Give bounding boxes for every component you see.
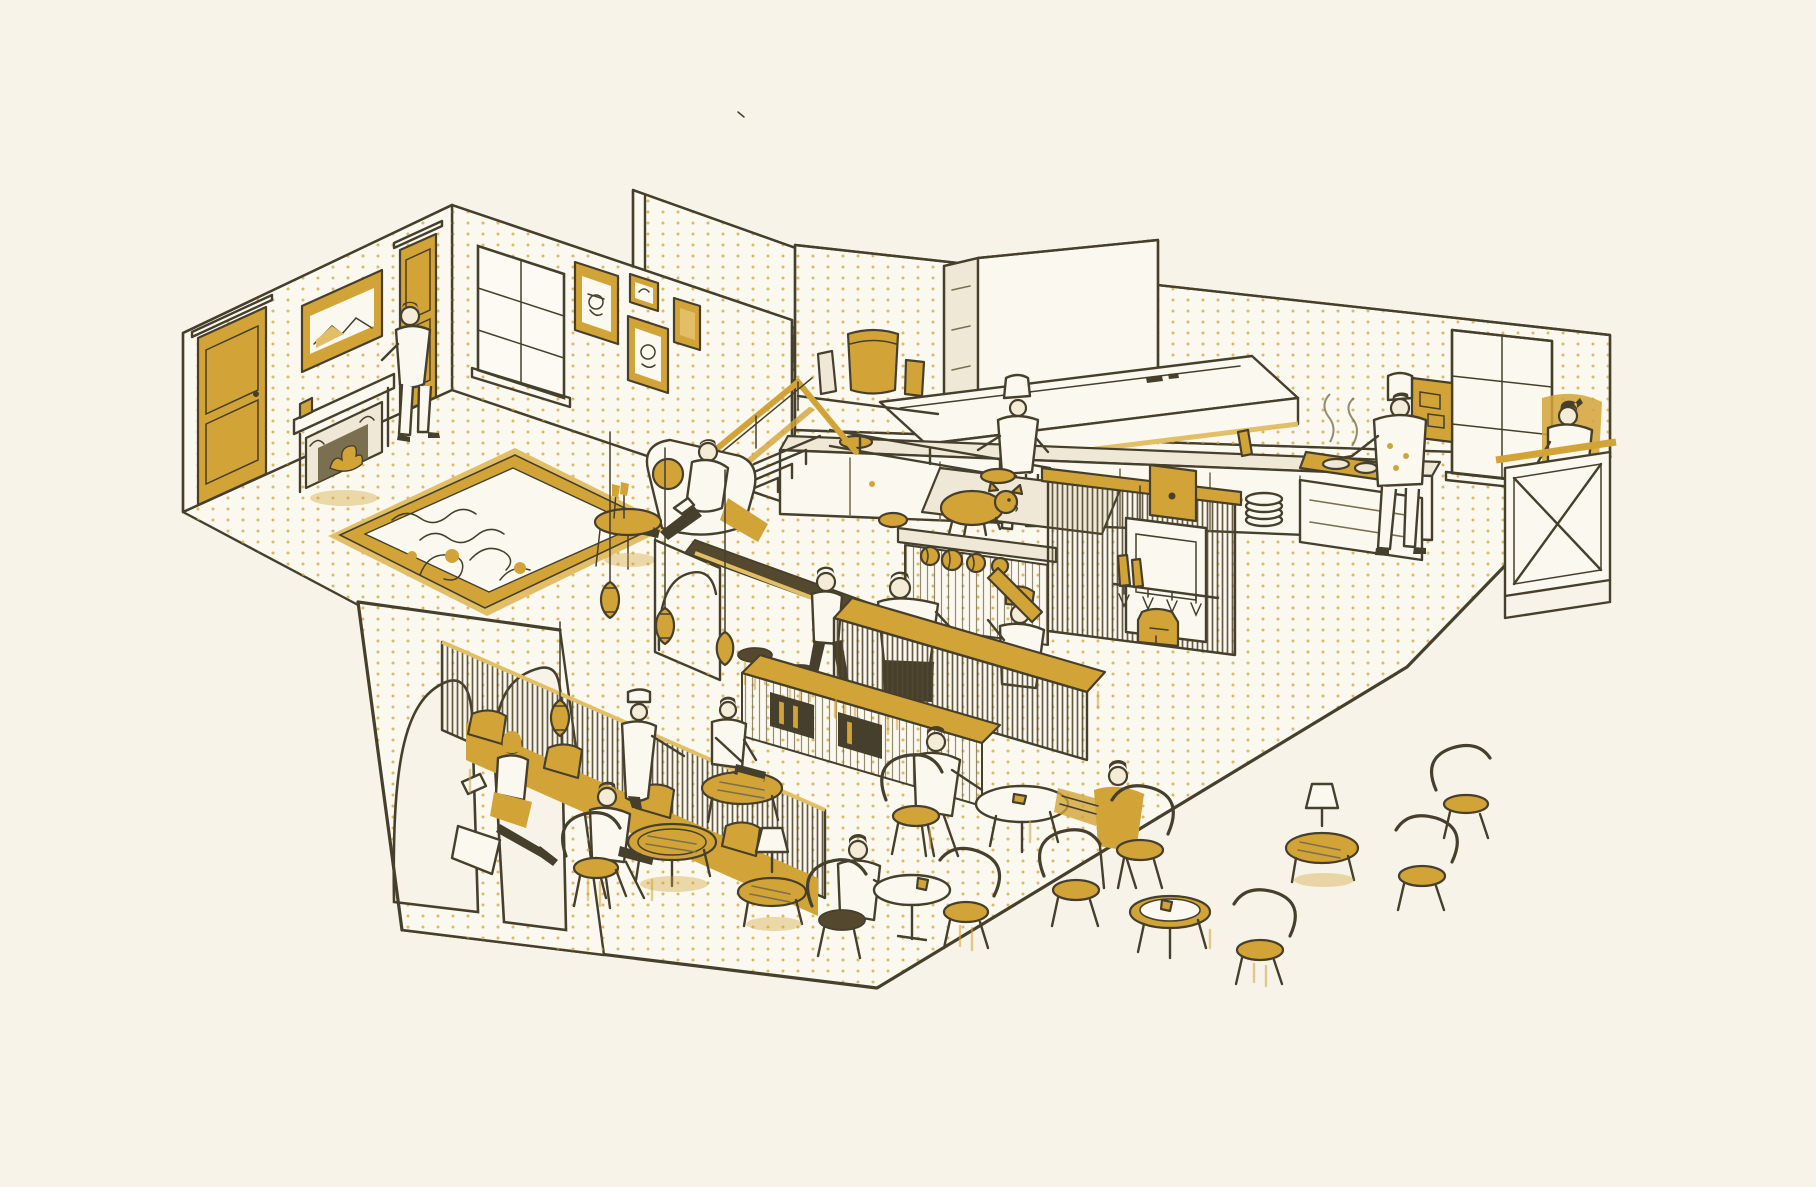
drink-glass — [917, 878, 928, 890]
gallery-frame-portrait-lady — [628, 316, 668, 393]
gallery-frame-portrait-man — [575, 262, 618, 344]
drink-glass — [1161, 900, 1172, 911]
bread-loaf — [879, 513, 907, 527]
door-left-1 — [192, 295, 272, 505]
shelf-jar — [905, 360, 924, 396]
gold-canister — [848, 330, 898, 394]
illustration-canvas: Isometric cutaway illustration of a café… — [0, 0, 1816, 1187]
shelf-bottle — [818, 351, 836, 394]
gold-cushion — [653, 459, 683, 489]
espresso-machine — [1138, 609, 1178, 646]
marble-table-top — [874, 875, 950, 905]
mixing-bowl — [981, 469, 1015, 483]
gallery-frame-accent — [674, 298, 700, 350]
coffee-cup — [1013, 794, 1026, 804]
waiter-cap — [628, 690, 650, 703]
chef-hat — [1004, 375, 1030, 398]
cafe-cutaway-illustration: Isometric cutaway illustration of a café… — [0, 0, 1816, 1187]
plate-stack — [1246, 493, 1282, 526]
